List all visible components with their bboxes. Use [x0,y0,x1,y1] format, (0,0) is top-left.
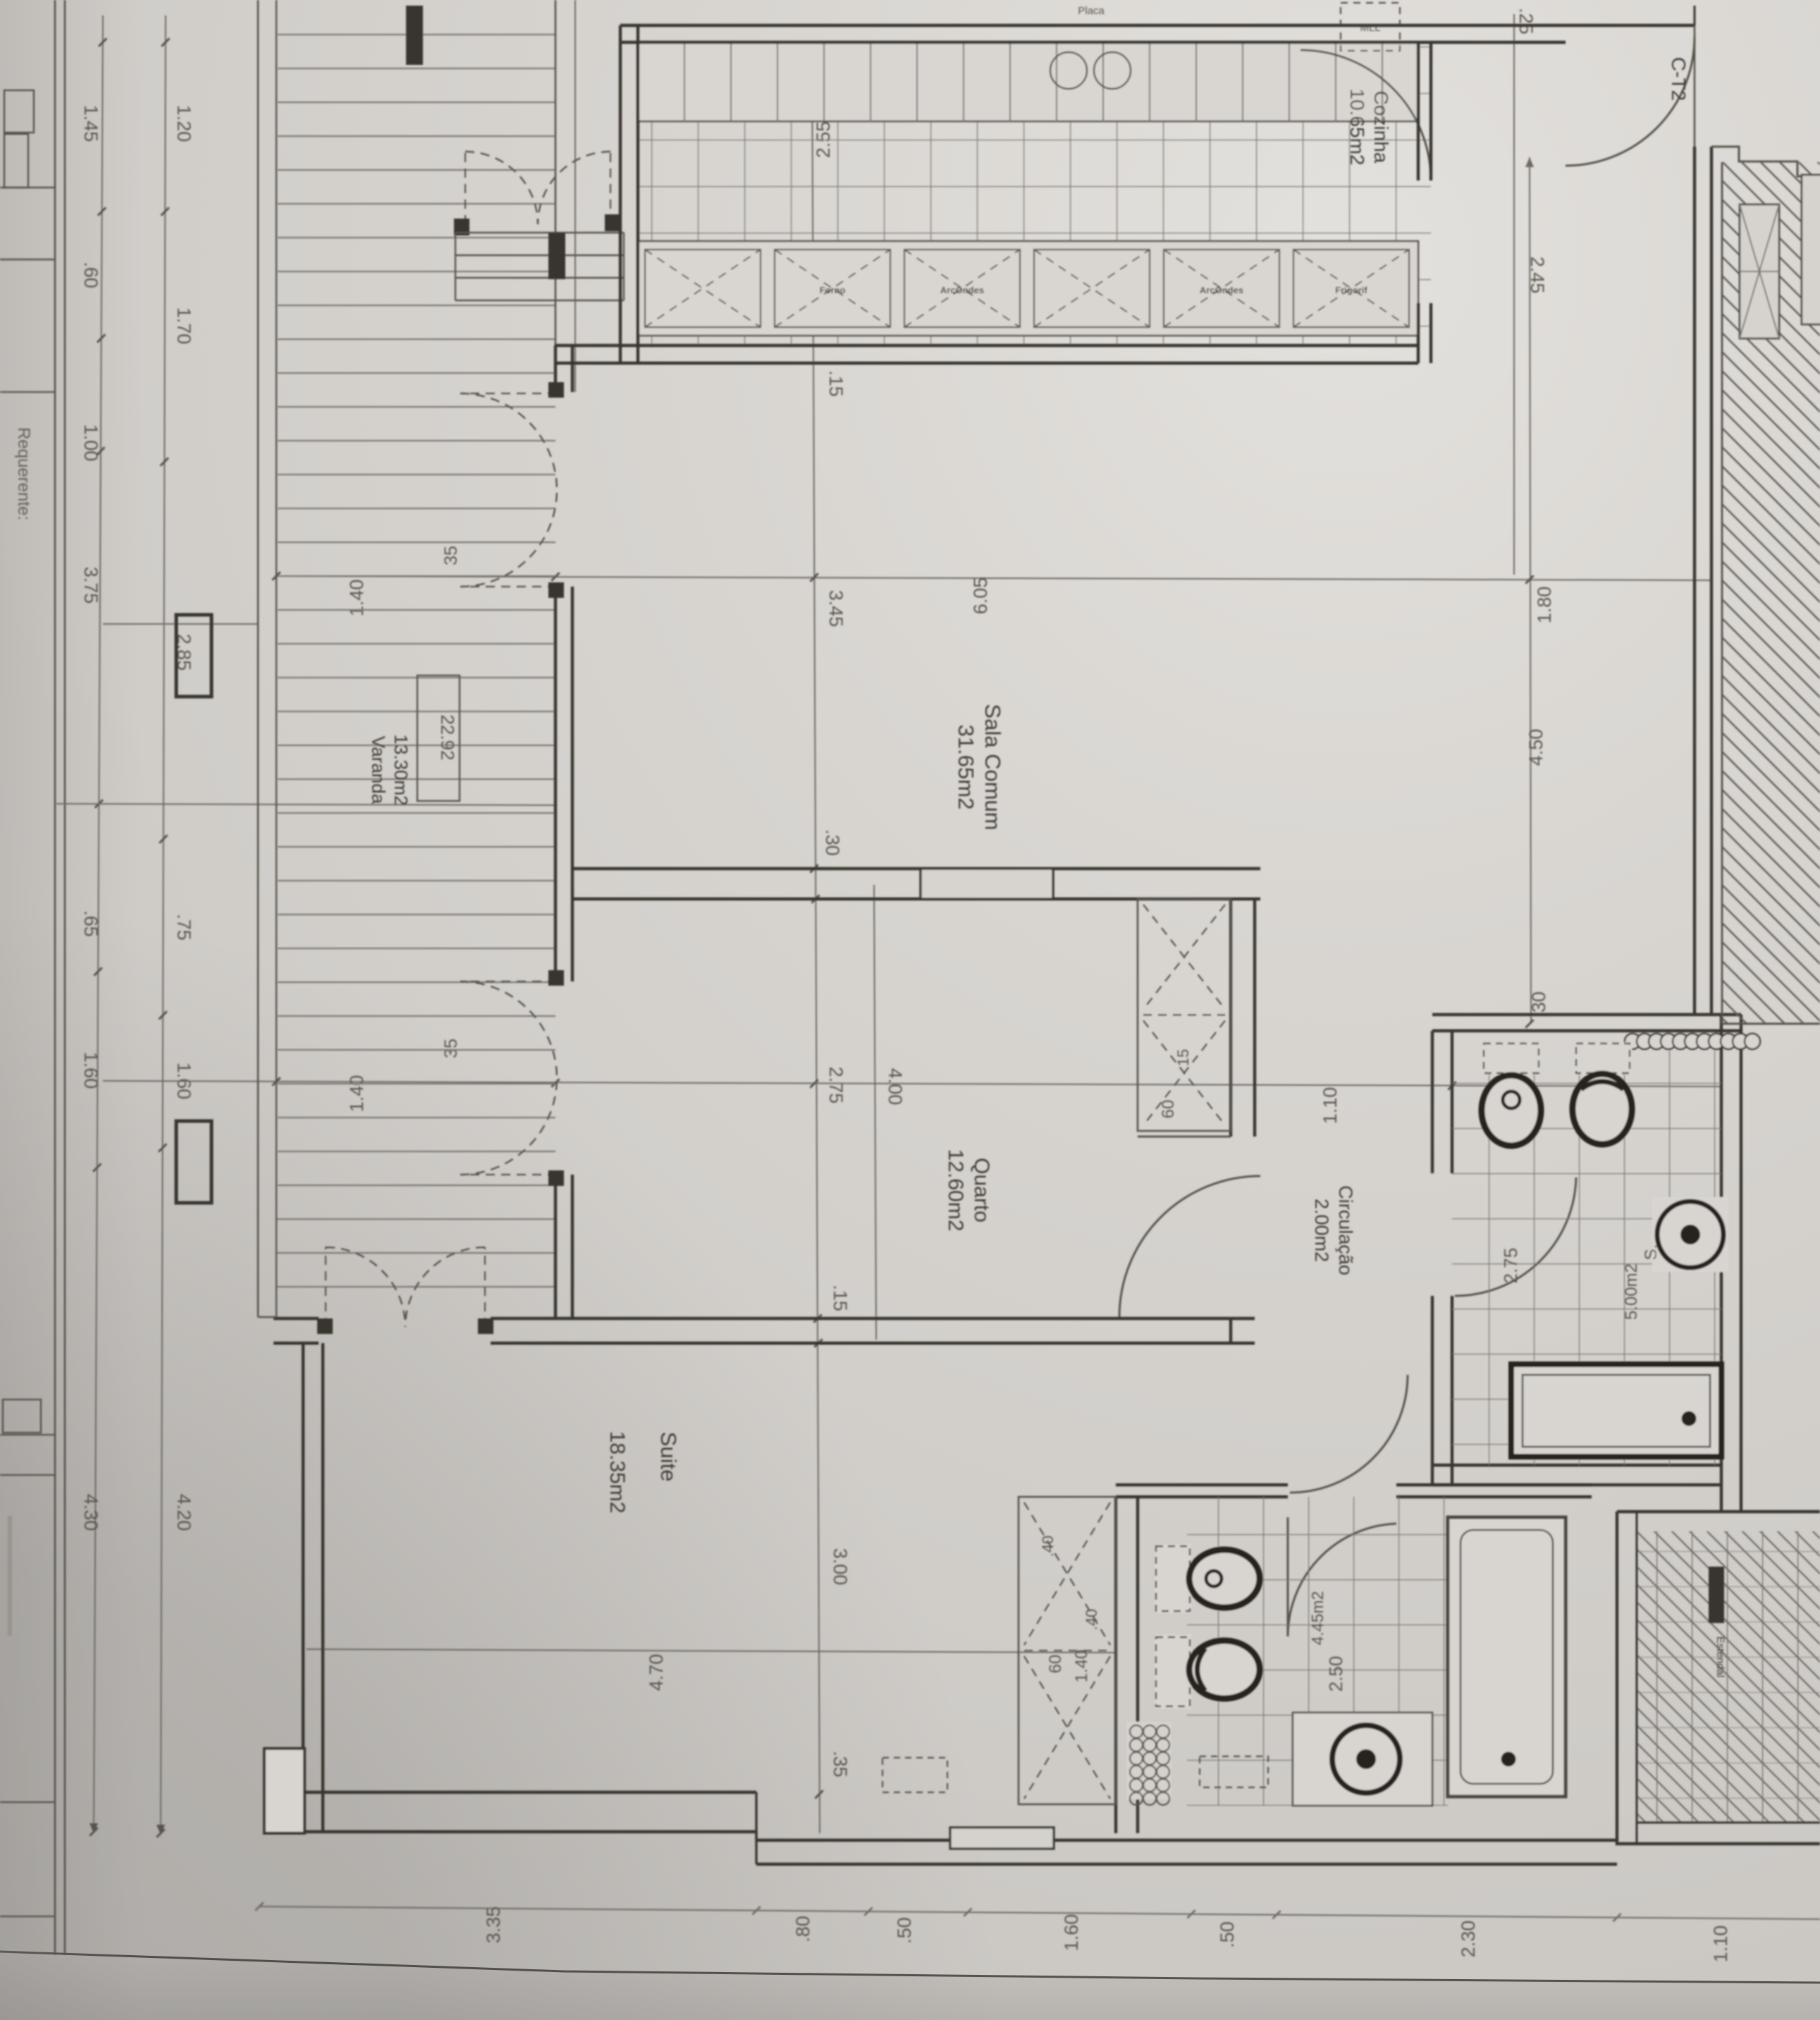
svg-text:.50: .50 [894,1917,915,1944]
svg-text:1.80: 1.80 [1534,587,1555,624]
svg-text:.40: .40 [1039,1536,1057,1557]
svg-text:S.: S. [1642,1244,1661,1261]
svg-text:3.35: 3.35 [483,1906,504,1944]
svg-text:Requerente:: Requerente: [14,427,33,520]
svg-text:1.40: 1.40 [1072,1650,1091,1683]
svg-text:4.20: 4.20 [173,1494,195,1531]
svg-text:1.60: 1.60 [1061,1914,1082,1952]
svg-text:6.05: 6.05 [970,577,991,615]
svg-text:1.70: 1.70 [173,307,195,345]
svg-text:1.45: 1.45 [80,105,102,142]
svg-text:4.50: 4.50 [1525,729,1547,766]
svg-text:Varanda: Varanda [368,736,389,804]
svg-text:.15: .15 [825,370,847,397]
svg-text:.80: .80 [792,1916,813,1942]
svg-text:3.00: 3.00 [830,1548,851,1586]
svg-text:ArcOndes: ArcOndes [1200,285,1243,295]
svg-text:Circulação: Circulação [1335,1185,1356,1275]
svg-text:.60: .60 [80,262,102,288]
svg-text:ArcOndes: ArcOndes [940,285,984,295]
svg-text:MLL: MLL [1360,22,1380,34]
svg-text:15: 15 [1174,1049,1192,1066]
svg-text:4.00: 4.00 [885,1068,906,1106]
svg-text:.65: .65 [80,910,102,937]
svg-text:C-T2: C-T2 [1668,57,1690,101]
svg-text:.35: .35 [830,1751,851,1777]
svg-text:Sala Comum: Sala Comum [980,704,1005,830]
svg-text:.15: .15 [830,1285,851,1311]
svg-text:.25: .25 [1515,8,1537,35]
svg-text:3.75: 3.75 [80,567,102,604]
svg-text:4.30: 4.30 [80,1494,102,1531]
svg-text:2.45: 2.45 [1527,257,1548,294]
svg-text:Frigorif: Frigorif [1335,285,1367,295]
svg-text:4.45m2: 4.45m2 [1308,1591,1327,1646]
svg-text:Cozinha: Cozinha [1370,91,1392,164]
svg-text:1.20: 1.20 [173,105,195,142]
svg-text:2.50: 2.50 [1325,1656,1346,1692]
svg-text:3.45: 3.45 [825,590,847,628]
svg-text:1.60: 1.60 [80,1052,102,1089]
svg-text:.40: .40 [1083,1609,1100,1631]
svg-text:12.60m2: 12.60m2 [944,1149,967,1232]
svg-text:60: 60 [1046,1655,1065,1674]
svg-text:4.70: 4.70 [646,1654,667,1691]
svg-text:.30: .30 [822,829,843,856]
svg-text:2.75: 2.75 [825,1067,847,1104]
svg-text:18.35m2: 18.35m2 [605,1431,629,1514]
svg-text:.75: .75 [173,914,195,941]
svg-text:Forno: Forno [820,285,846,295]
svg-text:31.65m2: 31.65m2 [954,725,978,810]
svg-text:2.00m2: 2.00m2 [1311,1199,1332,1262]
svg-text:Quarto: Quarto [970,1158,993,1223]
svg-text:13.30m2: 13.30m2 [391,734,412,805]
svg-text:.50: .50 [1217,1921,1238,1948]
svg-text:2.75: 2.75 [1500,1248,1521,1284]
svg-text:Placa: Placa [1078,5,1105,17]
svg-text:Estendal: Estendal [1714,1636,1726,1677]
svg-text:22.92: 22.92 [437,714,458,760]
svg-text:1.10: 1.10 [1710,1926,1731,1963]
svg-text:60: 60 [1159,1100,1178,1119]
svg-text:5.00m2: 5.00m2 [1622,1263,1641,1320]
svg-text:2.30: 2.30 [1458,1921,1479,1958]
svg-text:10.65m2: 10.65m2 [1346,89,1368,166]
svg-text:Suite: Suite [656,1432,681,1482]
svg-text:1.00: 1.00 [80,424,102,462]
svg-text:1.10: 1.10 [1320,1087,1341,1125]
